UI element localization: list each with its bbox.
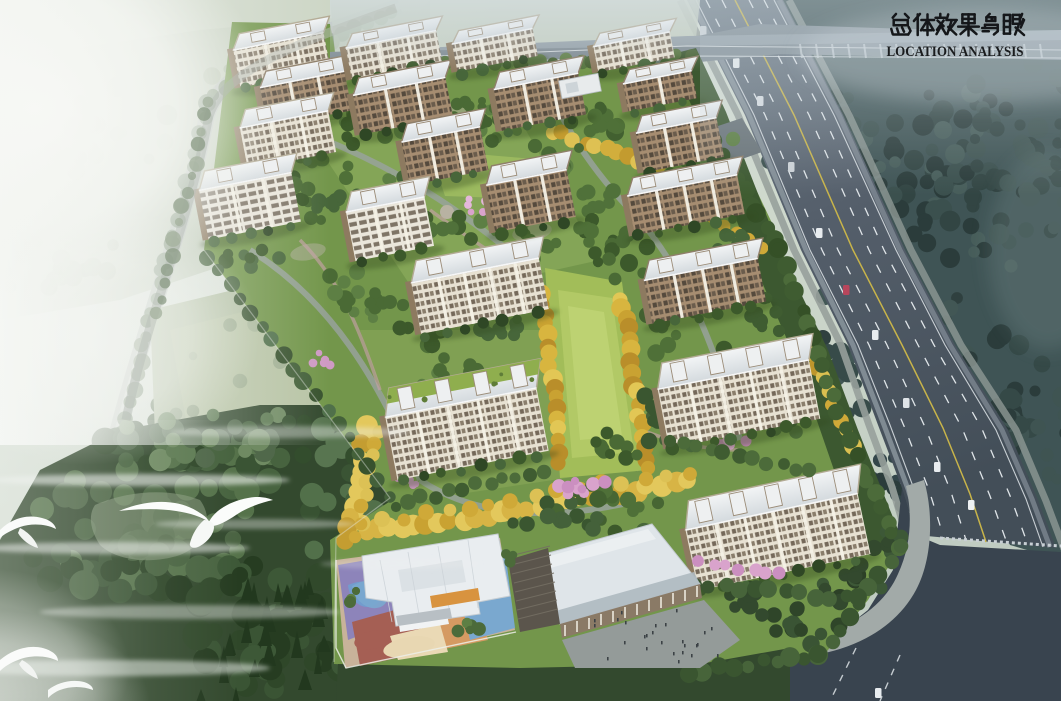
- svg-text:LOCATION ANALYSIS: LOCATION ANALYSIS: [887, 44, 1024, 60]
